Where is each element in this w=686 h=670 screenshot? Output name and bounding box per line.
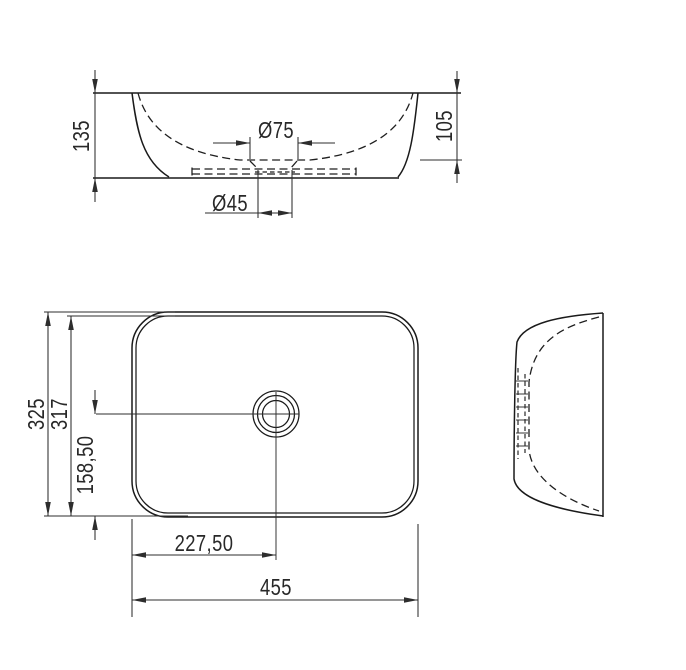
dim-label-drain-hole-diameter: Ø45 <box>212 191 248 216</box>
arrowhead <box>92 400 98 414</box>
arrowhead <box>262 552 276 558</box>
arrowhead <box>92 178 98 192</box>
dim-label-outer-depth: 325 <box>24 398 49 430</box>
arrowhead <box>68 502 74 516</box>
side-inner-bowl-hidden-line <box>529 317 599 511</box>
dim-label-inner-depth: 317 <box>47 398 72 430</box>
dim-label-drain-recess-diameter: Ø75 <box>258 118 294 143</box>
dim-label-bowl-depth: 105 <box>432 110 457 142</box>
front-outer-left-profile <box>132 93 169 177</box>
arrowhead <box>132 552 146 558</box>
plan-inner-rim <box>136 316 414 513</box>
arrowhead <box>278 210 292 216</box>
drawing-canvas: 135 105 Ø75 Ø45 <box>0 0 686 670</box>
arrowhead <box>45 312 51 326</box>
arrowhead <box>454 79 460 93</box>
arrowhead <box>298 140 312 146</box>
plan-view: 325 317 158,50 227,50 455 <box>24 312 418 617</box>
arrowhead <box>68 316 74 330</box>
arrowhead <box>45 502 51 516</box>
dim-label-drain-center-from-front: 158,50 <box>73 436 98 495</box>
arrowhead <box>454 160 460 174</box>
dim-label-drain-center-from-left: 227,50 <box>175 531 234 556</box>
front-drain-recess-slant-right <box>290 161 297 169</box>
side-outer-profile <box>514 313 603 516</box>
arrowhead <box>92 516 98 530</box>
plan-outer-rim <box>132 312 418 517</box>
side-elevation-view <box>514 313 603 517</box>
arrowhead <box>404 597 418 603</box>
front-drain-recess-slant-left <box>250 161 258 169</box>
technical-drawing-washbasin: 135 105 Ø75 Ø45 <box>0 0 686 670</box>
dim-label-overall-height: 135 <box>69 120 94 152</box>
arrowhead <box>92 79 98 93</box>
arrowhead <box>258 210 272 216</box>
arrowhead <box>236 140 250 146</box>
front-elevation-view: 135 105 Ø75 Ø45 <box>69 70 462 218</box>
dim-label-overall-width: 455 <box>260 575 292 600</box>
arrowhead <box>132 597 146 603</box>
